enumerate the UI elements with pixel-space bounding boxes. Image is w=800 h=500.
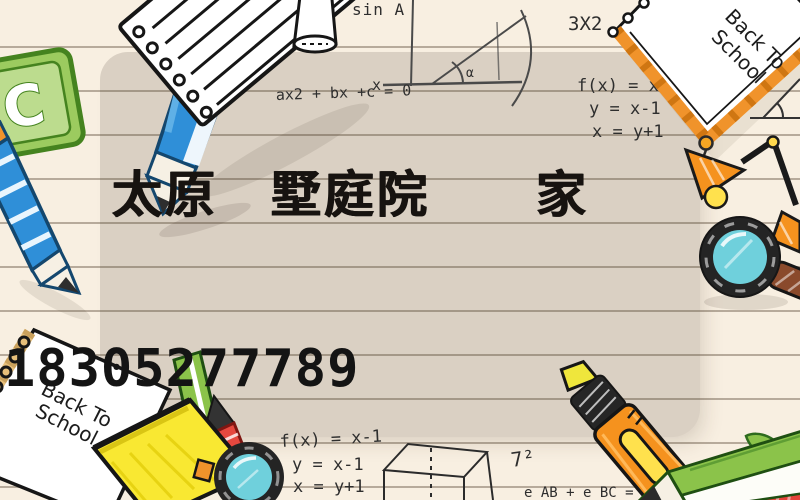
formula-bottom-1: f(x) = x-1	[279, 427, 382, 452]
formula-fx-3: x = y+1	[592, 122, 664, 142]
formula-bottom-3: x = y+1	[293, 477, 365, 497]
phone-number: 18305277789	[4, 343, 359, 395]
angle-label: α	[466, 66, 474, 81]
term-3x2: 3X2	[568, 13, 602, 35]
banner-canvas: C	[0, 0, 800, 500]
doodle-layer: C	[0, 0, 800, 500]
formula-fx-2: y = x-1	[589, 99, 661, 119]
sin-label: sin A	[352, 0, 405, 19]
formula-bottom-2: y = x-1	[292, 455, 364, 475]
power-label: 7²	[509, 445, 536, 472]
quadratic-formula: ax2 + bx +c = 0	[276, 81, 412, 104]
banner-title: 太原 墅庭院 家	[112, 170, 589, 220]
paper-roll-icon	[294, 0, 336, 52]
cube-doodle	[384, 444, 493, 500]
